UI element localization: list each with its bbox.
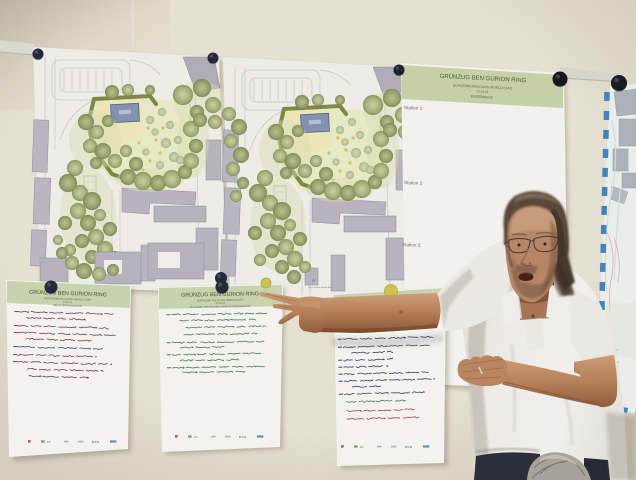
svg-text:23.03.24: 23.03.24 bbox=[476, 89, 488, 94]
svg-text:B G B: B G B bbox=[92, 440, 99, 444]
svg-text:LS: LS bbox=[360, 445, 364, 449]
svg-text:Station 1:: Station 1: bbox=[404, 105, 424, 111]
svg-text:LS: LS bbox=[194, 435, 198, 439]
svg-text:LS: LS bbox=[47, 440, 51, 444]
svg-text:B G B: B G B bbox=[239, 435, 246, 439]
svg-text:B G B: B G B bbox=[405, 445, 412, 449]
svg-text:Station 3:: Station 3: bbox=[402, 242, 422, 248]
svg-text:Station 2:: Station 2: bbox=[404, 180, 424, 186]
